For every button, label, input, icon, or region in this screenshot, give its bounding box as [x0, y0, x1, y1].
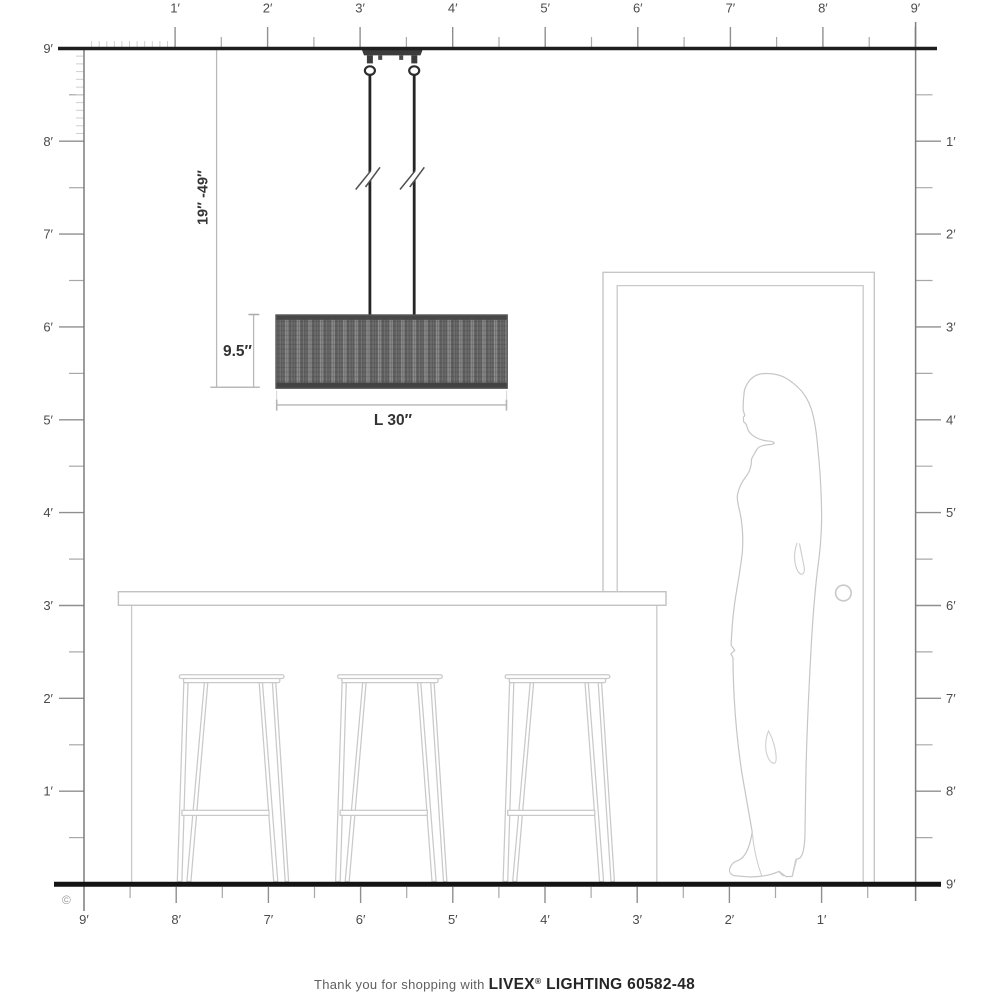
svg-text:5′: 5′	[946, 505, 956, 520]
svg-text:9.5″: 9.5″	[223, 343, 253, 360]
svg-text:19″ -49″: 19″ -49″	[196, 170, 212, 225]
svg-text:6′: 6′	[43, 319, 53, 334]
svg-text:7′: 7′	[946, 691, 956, 706]
svg-text:7′: 7′	[43, 227, 53, 242]
svg-text:8′: 8′	[946, 784, 956, 799]
svg-text:2′: 2′	[946, 227, 956, 242]
svg-text:1′: 1′	[43, 784, 53, 799]
svg-text:4′: 4′	[540, 912, 550, 927]
svg-text:6′: 6′	[633, 1, 643, 16]
svg-text:6′: 6′	[946, 598, 956, 613]
svg-text:9′: 9′	[911, 1, 921, 16]
svg-text:Thank you for shopping with LI: Thank you for shopping with LIVEX® LIGHT…	[314, 976, 695, 993]
svg-text:3′: 3′	[946, 319, 956, 334]
svg-text:©: ©	[62, 893, 71, 907]
svg-text:9′: 9′	[79, 912, 89, 927]
svg-text:8′: 8′	[43, 134, 53, 149]
svg-text:7′: 7′	[264, 912, 274, 927]
svg-text:8′: 8′	[818, 1, 828, 16]
svg-text:6′: 6′	[356, 912, 366, 927]
svg-text:1′: 1′	[170, 1, 180, 16]
svg-text:5′: 5′	[43, 412, 53, 427]
svg-text:9′: 9′	[946, 877, 956, 892]
svg-text:7′: 7′	[726, 1, 736, 16]
svg-text:3′: 3′	[43, 598, 53, 613]
svg-text:3′: 3′	[355, 1, 365, 16]
svg-text:2′: 2′	[43, 691, 53, 706]
svg-text:4′: 4′	[448, 1, 458, 16]
svg-text:1′: 1′	[946, 134, 956, 149]
svg-text:2′: 2′	[725, 912, 735, 927]
svg-text:5′: 5′	[540, 1, 550, 16]
svg-text:4′: 4′	[43, 505, 53, 520]
svg-text:8′: 8′	[171, 912, 181, 927]
svg-text:L 30″: L 30″	[374, 412, 413, 429]
svg-text:1′: 1′	[817, 912, 827, 927]
svg-text:5′: 5′	[448, 912, 458, 927]
svg-text:2′: 2′	[263, 1, 273, 16]
svg-text:3′: 3′	[632, 912, 642, 927]
svg-text:4′: 4′	[946, 412, 956, 427]
svg-text:9′: 9′	[43, 41, 53, 56]
